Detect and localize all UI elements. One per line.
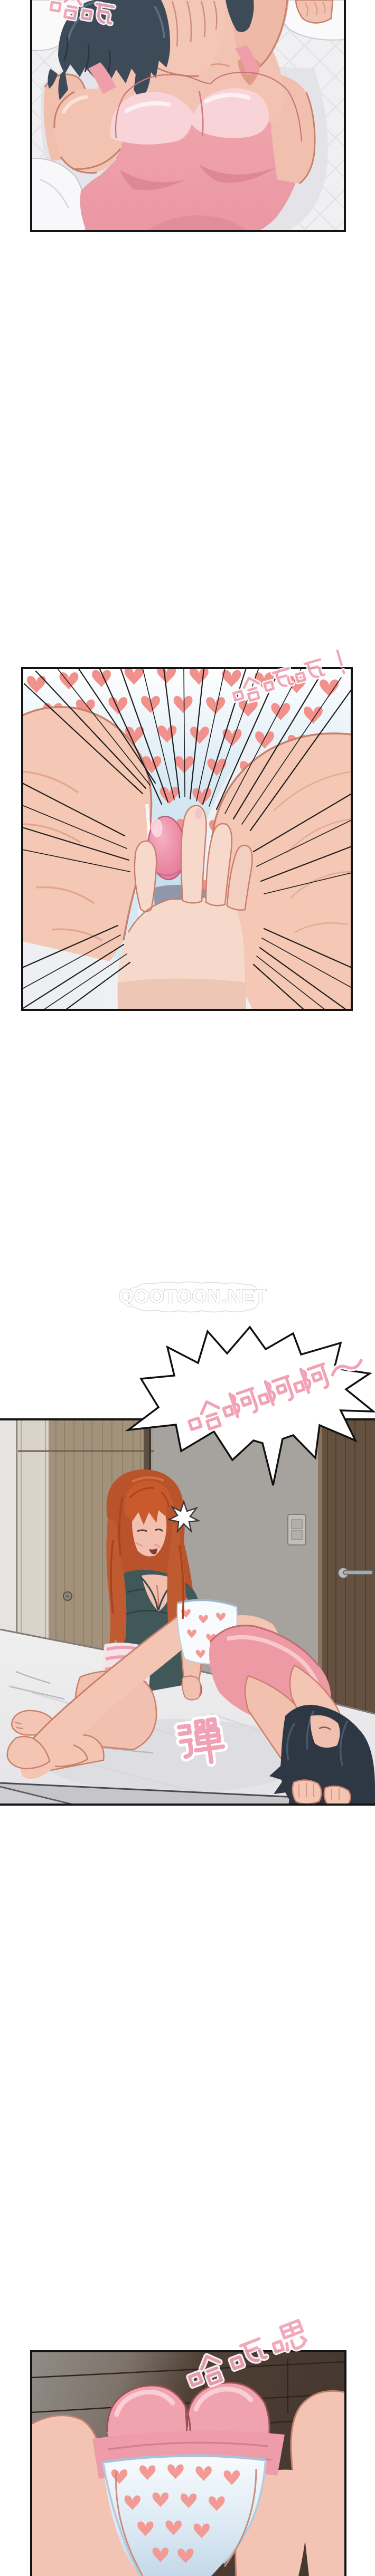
svg-text:QOOTOON.NET: QOOTOON.NET (119, 1285, 267, 1307)
